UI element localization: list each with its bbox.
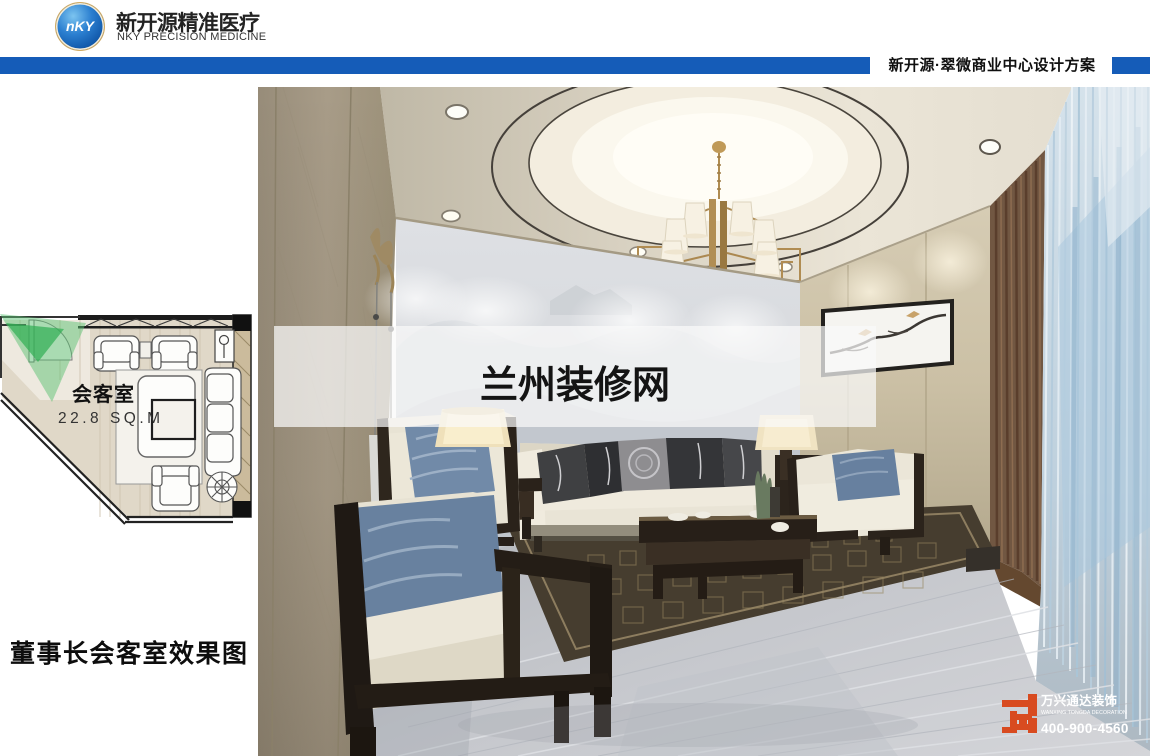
svg-text:400-900-4560: 400-900-4560 [1041, 721, 1129, 736]
svg-text:22.8 SQ.M: 22.8 SQ.M [58, 410, 164, 427]
svg-text:万兴通达装饰: 万兴通达装饰 [1040, 693, 1118, 708]
svg-text:会客室: 会客室 [72, 382, 135, 406]
svg-text:WANXING TONGDA DECORATION: WANXING TONGDA DECORATION [1041, 710, 1127, 716]
